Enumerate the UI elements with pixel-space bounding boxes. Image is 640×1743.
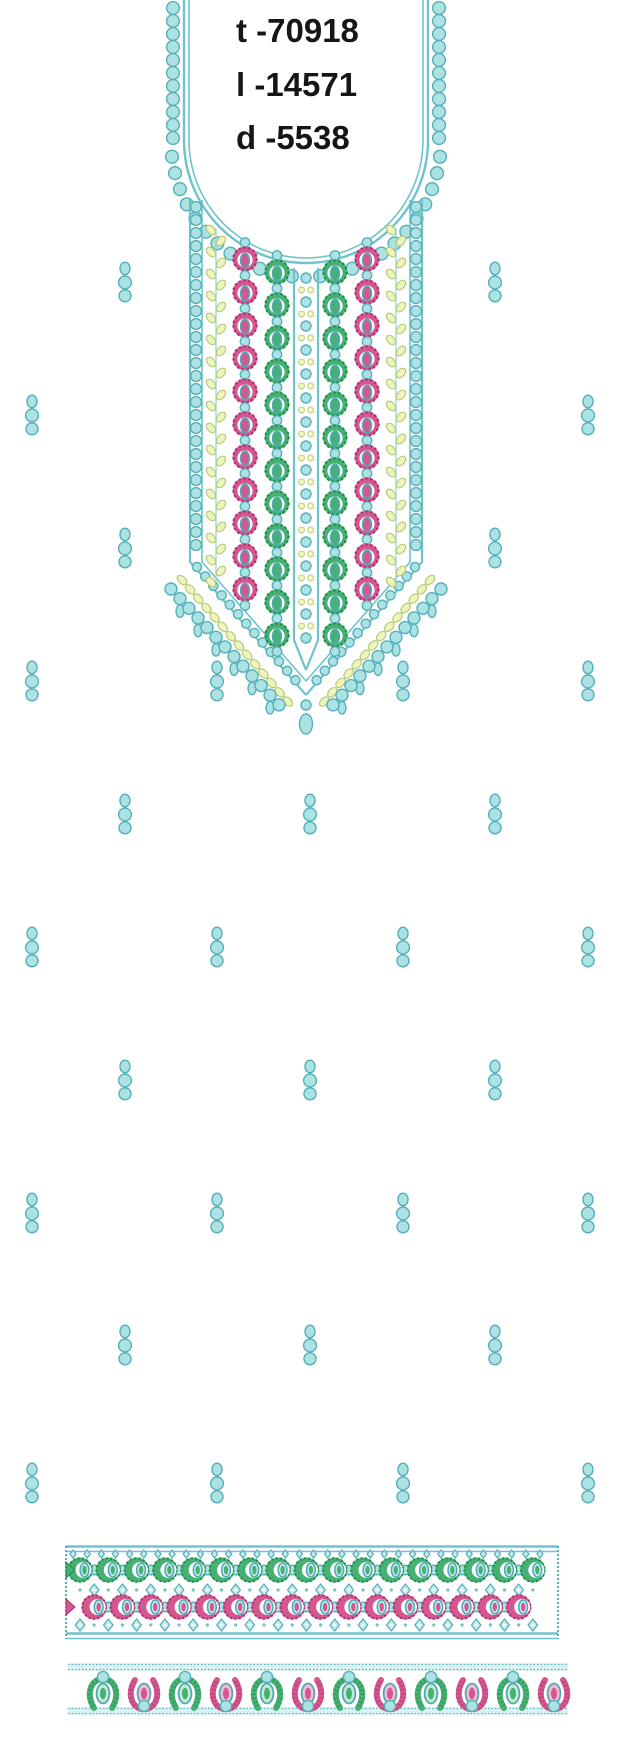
hem-border-panel: [68, 1663, 568, 1715]
stitch-count-total: t -70918: [236, 4, 359, 58]
stitch-info-block: t -70918 l -14571 d -5538: [236, 4, 359, 165]
stitch-count-length: l -14571: [236, 58, 359, 112]
main-border-panel: [66, 1546, 558, 1639]
embroidery-design-canvas: [0, 0, 640, 1743]
stitch-count-design: d -5538: [236, 111, 359, 165]
